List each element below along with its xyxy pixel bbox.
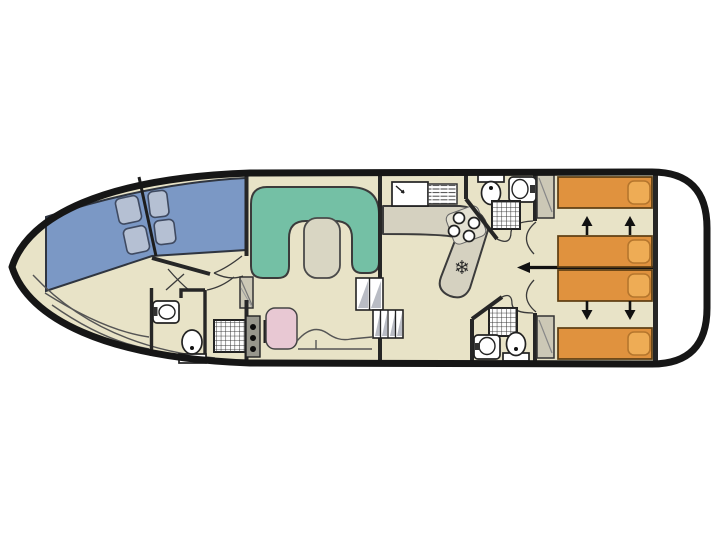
seat-cushion	[154, 219, 177, 245]
pillow	[628, 332, 650, 355]
faucet-icon	[153, 307, 158, 316]
fridge-snowflake-icon: ❄	[454, 257, 470, 279]
washbasin	[509, 177, 536, 202]
seat-cushion	[147, 190, 169, 218]
shower	[489, 308, 517, 336]
washbasin	[474, 335, 500, 359]
washbasin	[153, 301, 179, 323]
shower	[492, 201, 520, 229]
pillow	[628, 240, 650, 263]
shower	[214, 320, 246, 352]
pillow	[628, 181, 650, 204]
wardrobe	[537, 316, 554, 358]
saloon-table	[304, 218, 340, 278]
boat-floor-plan: ❄	[0, 0, 720, 540]
seat-cushion	[115, 195, 143, 225]
wardrobe	[537, 175, 554, 218]
pink-seat	[266, 308, 297, 349]
drainer	[428, 184, 457, 204]
faucet-icon	[530, 185, 535, 193]
pillow	[628, 274, 650, 297]
seat-cushion	[123, 225, 151, 255]
steps-upper	[356, 278, 383, 310]
galley-sink	[392, 182, 428, 206]
steps-lower	[373, 310, 403, 338]
faucet-icon	[475, 343, 480, 350]
